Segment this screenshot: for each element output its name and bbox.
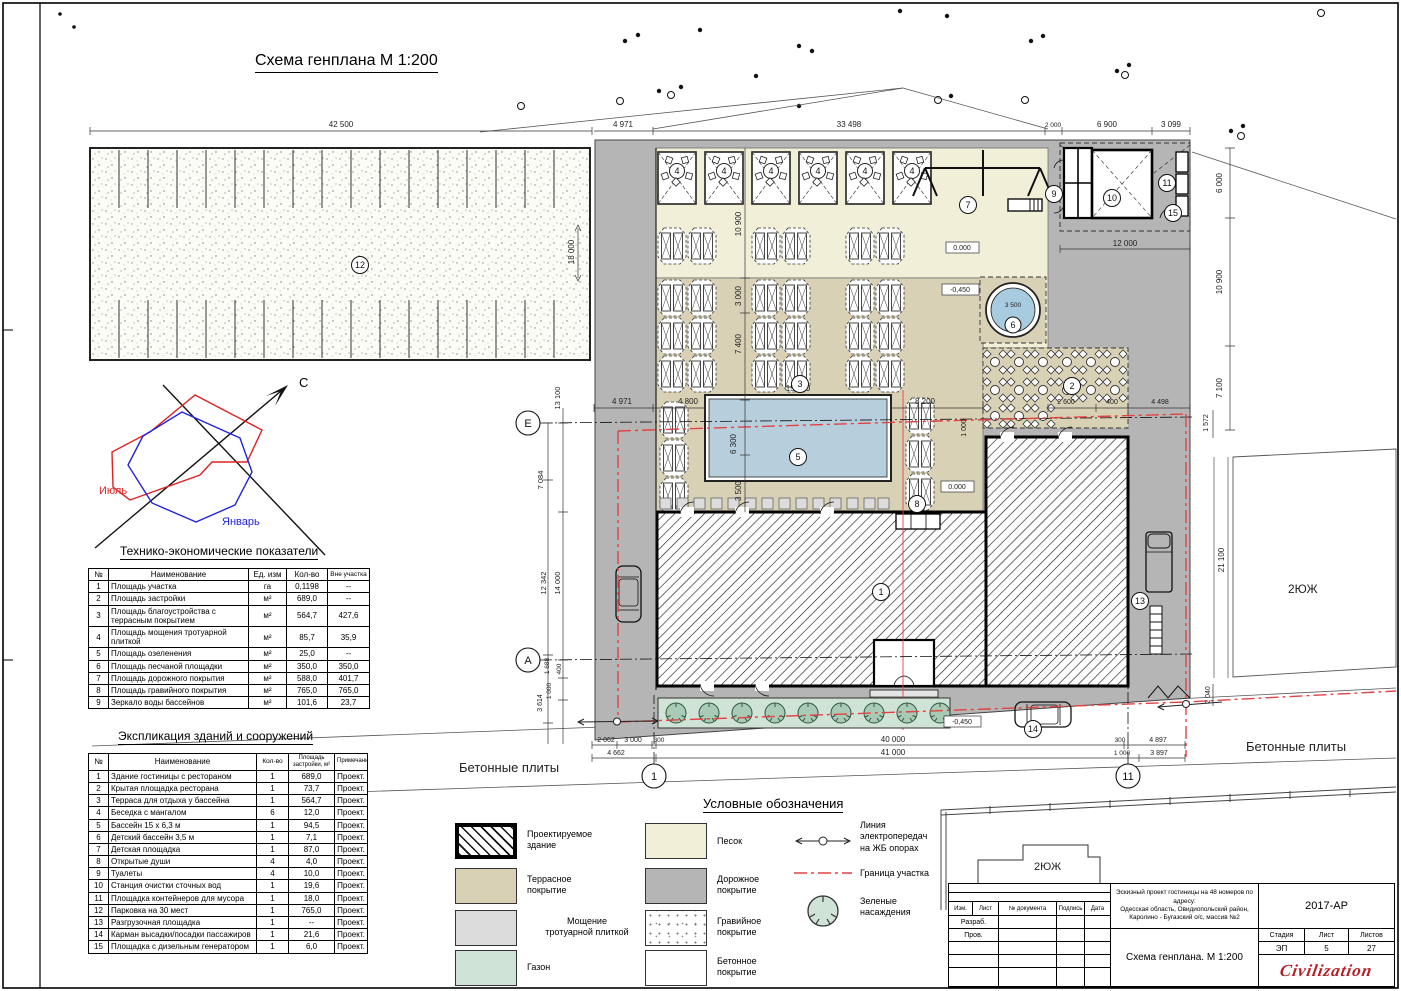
table-cell: 1 xyxy=(257,892,289,904)
table-row: 9Туалеты410,0Проект. xyxy=(89,868,368,880)
titleblock-sheets-value: 27 xyxy=(1349,942,1395,955)
table-cell: 765,0 xyxy=(289,904,335,916)
page-title: Схема генплана М 1:200 xyxy=(255,52,438,73)
legend-label: Проектируемое здание xyxy=(527,829,642,852)
table-cell: -- xyxy=(328,581,370,593)
svg-text:0.000: 0.000 xyxy=(953,245,971,252)
table-cell: Разгрузочная площадка xyxy=(109,917,257,929)
table-cell: 1 xyxy=(89,770,109,782)
svg-text:10: 10 xyxy=(1107,193,1117,203)
table-row: 12Парковка на 30 мест1765,0Проект. xyxy=(89,904,368,916)
svg-text:1 000: 1 000 xyxy=(546,682,553,699)
titleblock-code: 2017-АР xyxy=(1259,884,1395,929)
svg-text:4: 4 xyxy=(862,166,867,176)
legend-swatch-sand xyxy=(645,823,707,859)
svg-text:18 000: 18 000 xyxy=(567,239,576,264)
titleblock-col-izm: Изм. xyxy=(949,902,973,916)
svg-text:3 614: 3 614 xyxy=(537,694,544,712)
svg-text:14: 14 xyxy=(1028,724,1038,734)
explication-col: Площадь застройки, м² xyxy=(289,754,335,771)
tep-col: Кол-во xyxy=(287,569,328,581)
svg-text:12 000: 12 000 xyxy=(1113,239,1138,248)
titleblock-role-developed: Разраб. xyxy=(949,916,999,929)
table-cell: 1 xyxy=(257,917,289,929)
table-cell: Площадь мощения тротуарной плиткой xyxy=(109,626,249,647)
tep-col: Ед. изм xyxy=(249,569,287,581)
table-cell: м² xyxy=(249,697,287,709)
table-cell: Терраса для отдыха у бассейна xyxy=(109,795,257,807)
svg-text:4 897: 4 897 xyxy=(1149,737,1167,744)
table-cell: 6,0 xyxy=(289,941,335,953)
svg-text:1 572: 1 572 xyxy=(1203,414,1210,432)
svg-text:8: 8 xyxy=(914,499,919,509)
table-cell: 4 xyxy=(89,807,109,819)
table-cell: 85,7 xyxy=(287,626,328,647)
table-cell: -- xyxy=(328,648,370,660)
legend-boundary-symbol xyxy=(792,866,854,880)
svg-text:6 000: 6 000 xyxy=(1215,172,1224,193)
svg-text:42 500: 42 500 xyxy=(329,120,354,129)
table-cell: 689,0 xyxy=(289,770,335,782)
tep-col: № xyxy=(89,569,109,581)
legend-swatch-terrace xyxy=(455,868,517,904)
table-cell: 0,1198 xyxy=(287,581,328,593)
svg-text:13: 13 xyxy=(1135,596,1145,606)
explication-col: № xyxy=(89,754,109,771)
svg-text:300: 300 xyxy=(654,737,665,744)
svg-text:3 000: 3 000 xyxy=(734,285,743,306)
table-row: 10Станция очистки сточных вод119,6Проект… xyxy=(89,880,368,892)
legend-swatch-gravel xyxy=(645,910,707,946)
table-cell: 5 xyxy=(89,648,109,660)
table-cell: м² xyxy=(249,593,287,605)
svg-text:40 000: 40 000 xyxy=(881,735,906,744)
svg-text:7 400: 7 400 xyxy=(734,333,743,354)
svg-text:4: 4 xyxy=(768,166,773,176)
table-cell: 7 xyxy=(89,843,109,855)
legend-label: Гравийное покрытие xyxy=(717,916,807,939)
table-cell: 5 xyxy=(89,819,109,831)
table-row: 8Открытые души44,0Проект. xyxy=(89,856,368,868)
table-row: 3Площадь благоустройства с террасным пок… xyxy=(89,605,370,626)
svg-text:12: 12 xyxy=(355,260,365,270)
table-cell: 6 xyxy=(89,831,109,843)
table-cell: 14 xyxy=(89,929,109,941)
table-cell: 23,7 xyxy=(328,697,370,709)
table-cell: Площадь озеленения xyxy=(109,648,249,660)
table-cell: 12 xyxy=(89,904,109,916)
neighbor-label-small: 2ЮЖ xyxy=(1034,861,1061,873)
table-row: 11Площадка контейнеров для мусора118,0Пр… xyxy=(89,892,368,904)
explication-col: Наименование xyxy=(109,754,257,771)
svg-text:3 000: 3 000 xyxy=(624,737,642,744)
titleblock-sheet-value: 5 xyxy=(1305,942,1349,955)
table-cell: 350,0 xyxy=(328,660,370,672)
svg-text:33 498: 33 498 xyxy=(837,120,862,129)
table-cell: 101,6 xyxy=(287,697,328,709)
table-cell: Открытые души xyxy=(109,856,257,868)
table-row: 3Терраса для отдыха у бассейна1564,7Прое… xyxy=(89,795,368,807)
titleblock-doc-title: Схема генплана. М 1:200 xyxy=(1111,929,1259,987)
legend-swatch-road xyxy=(645,868,707,904)
table-cell: Проект. xyxy=(335,819,368,831)
svg-text:3 500: 3 500 xyxy=(734,480,743,501)
table-cell: м² xyxy=(249,626,287,647)
svg-text:-0,450: -0,450 xyxy=(950,287,970,294)
svg-text:0.000: 0.000 xyxy=(948,484,966,491)
table-cell: Площадь дорожного покрытия xyxy=(109,672,249,684)
table-row: 9Зеркало воды бассейновм²101,623,7 xyxy=(89,697,370,709)
table-cell: 21,6 xyxy=(289,929,335,941)
titleblock-sheet-header: Лист xyxy=(1305,929,1349,942)
table-cell: Проект. xyxy=(335,843,368,855)
table-cell: м² xyxy=(249,605,287,626)
table-cell: Проект. xyxy=(335,868,368,880)
table-cell: 1 xyxy=(257,770,289,782)
table-cell: 18,0 xyxy=(289,892,335,904)
svg-text:3 500: 3 500 xyxy=(1005,302,1022,309)
table-cell: Бассейн 15 х 6,3 м xyxy=(109,819,257,831)
legend-swatch-lawn xyxy=(455,950,517,986)
svg-text:3: 3 xyxy=(797,379,802,389)
table-cell: 10,0 xyxy=(289,868,335,880)
table-row: 13Разгрузочная площадка1--Проект. xyxy=(89,917,368,929)
table-cell: м² xyxy=(249,648,287,660)
table-cell: 6 xyxy=(89,660,109,672)
legend-heading: Условные обозначения xyxy=(703,796,843,813)
table-row: 4Площадь мощения тротуарной плиткойм²85,… xyxy=(89,626,370,647)
table-cell: Площадь благоустройства с террасным покр… xyxy=(109,605,249,626)
windrose-july-label: Июль xyxy=(99,485,127,497)
svg-text:11: 11 xyxy=(1162,178,1171,188)
svg-text:13 100: 13 100 xyxy=(553,387,562,410)
svg-text:11: 11 xyxy=(1122,771,1133,783)
svg-text:15: 15 xyxy=(1168,208,1178,218)
table-cell: 25,0 xyxy=(287,648,328,660)
table-cell: Проект. xyxy=(335,880,368,892)
table-cell: Туалеты xyxy=(109,868,257,880)
table-cell: Проект. xyxy=(335,770,368,782)
svg-text:9: 9 xyxy=(1051,189,1056,199)
table-cell: Детский бассейн 3,5 м xyxy=(109,831,257,843)
table-cell: 7,1 xyxy=(289,831,335,843)
table-cell: 1 xyxy=(257,929,289,941)
svg-text:14 000: 14 000 xyxy=(553,572,562,595)
legend-label: Песок xyxy=(717,836,742,847)
svg-text:2 600: 2 600 xyxy=(1057,399,1075,406)
table-row: 1Площадь участкага0,1198-- xyxy=(89,581,370,593)
table-cell: 2 xyxy=(89,782,109,794)
svg-text:8 200: 8 200 xyxy=(915,397,936,406)
explication-col: Кол-во xyxy=(257,754,289,771)
table-row: 8Площадь гравийного покрытиям²765,0765,0 xyxy=(89,684,370,696)
svg-text:10 900: 10 900 xyxy=(1215,269,1224,294)
svg-text:41 000: 41 000 xyxy=(881,748,906,757)
table-row: 6Площадь песчаной площадким²350,0350,0 xyxy=(89,660,370,672)
table-cell: Проект. xyxy=(335,856,368,868)
table-cell: 1 xyxy=(257,819,289,831)
concrete-plates-right-label: Бетонные плиты xyxy=(1246,739,1346,754)
table-cell: 1 xyxy=(257,904,289,916)
svg-text:3 897: 3 897 xyxy=(1150,750,1168,757)
titleblock-col-doc: № документа xyxy=(999,902,1057,916)
table-cell: Проект. xyxy=(335,892,368,904)
svg-text:400: 400 xyxy=(556,663,563,674)
table-cell: м² xyxy=(249,672,287,684)
table-cell: 8 xyxy=(89,856,109,868)
svg-text:5: 5 xyxy=(795,452,800,462)
table-cell: 350,0 xyxy=(287,660,328,672)
table-cell: Проект. xyxy=(335,929,368,941)
table-cell: 3 xyxy=(89,605,109,626)
svg-text:4: 4 xyxy=(815,166,820,176)
legend-label: Террасное покрытие xyxy=(527,874,642,897)
svg-text:4 971: 4 971 xyxy=(612,397,633,406)
table-cell: 4 xyxy=(89,626,109,647)
table-cell: Площадка с дизельным генератором xyxy=(109,941,257,953)
tep-heading: Технико-экономические показатели xyxy=(120,544,318,560)
table-cell: 87,0 xyxy=(289,843,335,855)
table-row: 2Крытая площадка ресторана173,7Проект. xyxy=(89,782,368,794)
table-cell: 10 xyxy=(89,880,109,892)
legend-label: Газон xyxy=(527,962,550,973)
titleblock-sheets-header: Листов xyxy=(1349,929,1395,942)
table-cell: Карман высадки/посадки пассажиров xyxy=(109,929,257,941)
table-cell: Парковка на 30 мест xyxy=(109,904,257,916)
table-cell: 1 xyxy=(257,843,289,855)
titleblock-stage-header: Стадия xyxy=(1259,929,1305,942)
north-label: С xyxy=(299,375,308,390)
table-cell: 2 xyxy=(89,593,109,605)
table-cell: 1 xyxy=(89,581,109,593)
table-cell: Крытая площадка ресторана xyxy=(109,782,257,794)
titleblock-col-list: Лист xyxy=(973,902,999,916)
table-cell: Детская площадка xyxy=(109,843,257,855)
legend-swatch-paving xyxy=(455,910,517,946)
svg-text:6 900: 6 900 xyxy=(1097,120,1118,129)
table-cell: -- xyxy=(328,593,370,605)
table-row: 5Бассейн 15 х 6,3 м194,5Проект. xyxy=(89,819,368,831)
explication-table: № Наименование Кол-во Площадь застройки,… xyxy=(88,753,368,954)
table-cell: 4,0 xyxy=(289,856,335,868)
table-cell: 427,6 xyxy=(328,605,370,626)
svg-text:4: 4 xyxy=(721,166,726,176)
table-row: 7Детская площадка187,0Проект. xyxy=(89,843,368,855)
tep-table: № Наименование Ед. изм Кол-во Вне участк… xyxy=(88,568,370,709)
table-cell: 1 xyxy=(257,782,289,794)
svg-text:4 971: 4 971 xyxy=(613,120,634,129)
table-row: 1Здание гостиницы с рестораном1689,0Прое… xyxy=(89,770,368,782)
table-cell: м² xyxy=(249,684,287,696)
table-row: 14Карман высадки/посадки пассажиров121,6… xyxy=(89,929,368,941)
table-cell: 73,7 xyxy=(289,782,335,794)
table-cell: 765,0 xyxy=(287,684,328,696)
fire-ladder xyxy=(1150,606,1162,654)
table-row: 15Площадка с дизельным генератором16,0Пр… xyxy=(89,941,368,953)
title-block: Изм. Лист № документа Подпись Дата Разра… xyxy=(948,883,1395,988)
table-cell: 35,9 xyxy=(328,626,370,647)
table-cell: 1 xyxy=(257,941,289,953)
table-cell: Площадь песчаной площадки xyxy=(109,660,249,672)
svg-text:21 100: 21 100 xyxy=(1217,547,1226,572)
table-cell: 9 xyxy=(89,697,109,709)
windrose-january-label: Январь xyxy=(222,516,260,528)
legend-label: Граница участка xyxy=(860,868,970,879)
tep-header-row: № Наименование Ед. изм Кол-во Вне участк… xyxy=(89,569,370,581)
explication-heading: Экспликация зданий и сооружений xyxy=(118,729,313,745)
table-cell: 19,6 xyxy=(289,880,335,892)
legend-swatch-building xyxy=(455,823,517,859)
table-cell: га xyxy=(249,581,287,593)
table-cell: 9 xyxy=(89,868,109,880)
svg-text:6 300: 6 300 xyxy=(729,433,738,454)
neighbor-building xyxy=(1214,449,1396,678)
table-cell: 13 xyxy=(89,917,109,929)
svg-text:12 342: 12 342 xyxy=(539,572,548,595)
table-cell: Проект. xyxy=(335,795,368,807)
table-row: 5Площадь озеленениям²25,0-- xyxy=(89,648,370,660)
svg-text:4 498: 4 498 xyxy=(1151,399,1169,406)
table-cell: 564,7 xyxy=(289,795,335,807)
table-cell: 689,0 xyxy=(287,593,328,605)
table-cell: Здание гостиницы с рестораном xyxy=(109,770,257,782)
svg-text:Е: Е xyxy=(524,418,531,430)
table-cell: 3 xyxy=(89,795,109,807)
neighbor-label-big: 2ЮЖ xyxy=(1288,582,1318,596)
svg-text:4: 4 xyxy=(909,166,914,176)
legend-label: Бетонное покрытие xyxy=(717,956,807,979)
table-cell: Проект. xyxy=(335,904,368,916)
parking-area xyxy=(90,148,590,360)
svg-text:2 000: 2 000 xyxy=(1045,122,1062,129)
table-cell: Площадка контейнеров для мусора xyxy=(109,892,257,904)
svg-text:А: А xyxy=(524,655,532,667)
table-cell: 11 xyxy=(89,892,109,904)
legend-swatch-concrete xyxy=(645,950,707,986)
titleblock-role-checked: Пров. xyxy=(949,929,999,942)
table-cell: 6 xyxy=(257,807,289,819)
table-row: 2Площадь застройким²689,0-- xyxy=(89,593,370,605)
table-cell: Площадь застройки xyxy=(109,593,249,605)
svg-text:7 084: 7 084 xyxy=(536,471,545,490)
table-cell: 1 xyxy=(257,795,289,807)
svg-text:3 099: 3 099 xyxy=(1161,120,1182,129)
legend-label: Мощение тротуарной плиткой xyxy=(527,916,647,939)
table-row: 7Площадь дорожного покрытиям²588,0401,7 xyxy=(89,672,370,684)
table-cell: 8 xyxy=(89,684,109,696)
table-cell: Проект. xyxy=(335,941,368,953)
table-cell: 1 xyxy=(257,831,289,843)
titleblock-col-sign: Подпись xyxy=(1057,902,1085,916)
company-logo: Civilization xyxy=(1279,961,1375,981)
concrete-plates-left-label: Бетонные плиты xyxy=(459,760,559,775)
table-cell: -- xyxy=(289,917,335,929)
svg-text:2 040: 2 040 xyxy=(1205,686,1212,704)
svg-text:2 062: 2 062 xyxy=(597,737,615,744)
table-cell: Проект. xyxy=(335,807,368,819)
table-cell: 12,0 xyxy=(289,807,335,819)
svg-text:1: 1 xyxy=(878,587,883,597)
table-cell: 94,5 xyxy=(289,819,335,831)
table-cell: 1 xyxy=(257,880,289,892)
tep-col: Вне участка xyxy=(328,569,370,581)
drawing-sheet: С Июль Январь 42 5 xyxy=(0,0,1401,991)
legend-powerline-symbol xyxy=(792,826,854,856)
table-cell: Станция очистки сточных вод xyxy=(109,880,257,892)
svg-text:4 800: 4 800 xyxy=(678,397,699,406)
titleblock-project: Эскизный проект гостиницы на 48 номеров … xyxy=(1111,884,1259,929)
legend-label: Линия электропередач на ЖБ опорах xyxy=(860,820,970,854)
svg-text:7: 7 xyxy=(965,200,970,210)
table-cell: 7 xyxy=(89,672,109,684)
table-cell: 4 xyxy=(257,868,289,880)
table-cell: 588,0 xyxy=(287,672,328,684)
svg-text:4: 4 xyxy=(674,166,679,176)
table-cell: 765,0 xyxy=(328,684,370,696)
table-cell: 4 xyxy=(257,856,289,868)
table-cell: м² xyxy=(249,660,287,672)
table-cell: Проект. xyxy=(335,782,368,794)
explication-header-row: № Наименование Кол-во Площадь застройки,… xyxy=(89,754,368,771)
svg-text:300: 300 xyxy=(1115,737,1126,744)
table-row: 6Детский бассейн 3,5 м17,1Проект. xyxy=(89,831,368,843)
svg-text:1 000: 1 000 xyxy=(961,419,968,437)
svg-text:1 688: 1 688 xyxy=(544,657,551,674)
table-cell: Беседка с мангалом xyxy=(109,807,257,819)
svg-text:7 100: 7 100 xyxy=(1215,377,1224,398)
terrain-dots xyxy=(58,9,1324,140)
table-cell: Проект. xyxy=(335,917,368,929)
svg-text:2: 2 xyxy=(1069,381,1074,391)
table-row: 4Беседка с мангалом612,0Проект. xyxy=(89,807,368,819)
lawn-strip xyxy=(658,698,950,728)
table-cell: 564,7 xyxy=(287,605,328,626)
svg-text:1 000: 1 000 xyxy=(1114,750,1131,757)
tep-col: Наименование xyxy=(109,569,249,581)
titleblock-stage-value: ЭП xyxy=(1259,942,1305,955)
legend-tree-symbol xyxy=(800,890,846,932)
table-cell: Площадь гравийного покрытия xyxy=(109,684,249,696)
svg-text:400: 400 xyxy=(1106,399,1118,406)
svg-text:10 900: 10 900 xyxy=(734,211,743,236)
wind-rose: С Июль Январь xyxy=(95,375,325,555)
explication-col: Примечание xyxy=(335,754,368,771)
svg-text:1: 1 xyxy=(651,771,657,783)
table-cell: Зеркало воды бассейнов xyxy=(109,697,249,709)
svg-text:-0,450: -0,450 xyxy=(952,719,972,726)
svg-text:6: 6 xyxy=(1010,320,1015,330)
titleblock-col-date: Дата xyxy=(1085,902,1111,916)
svg-text:4 662: 4 662 xyxy=(607,750,625,757)
table-cell: Проект. xyxy=(335,831,368,843)
table-cell: 15 xyxy=(89,941,109,953)
table-cell: 401,7 xyxy=(328,672,370,684)
table-cell: Площадь участка xyxy=(109,581,249,593)
